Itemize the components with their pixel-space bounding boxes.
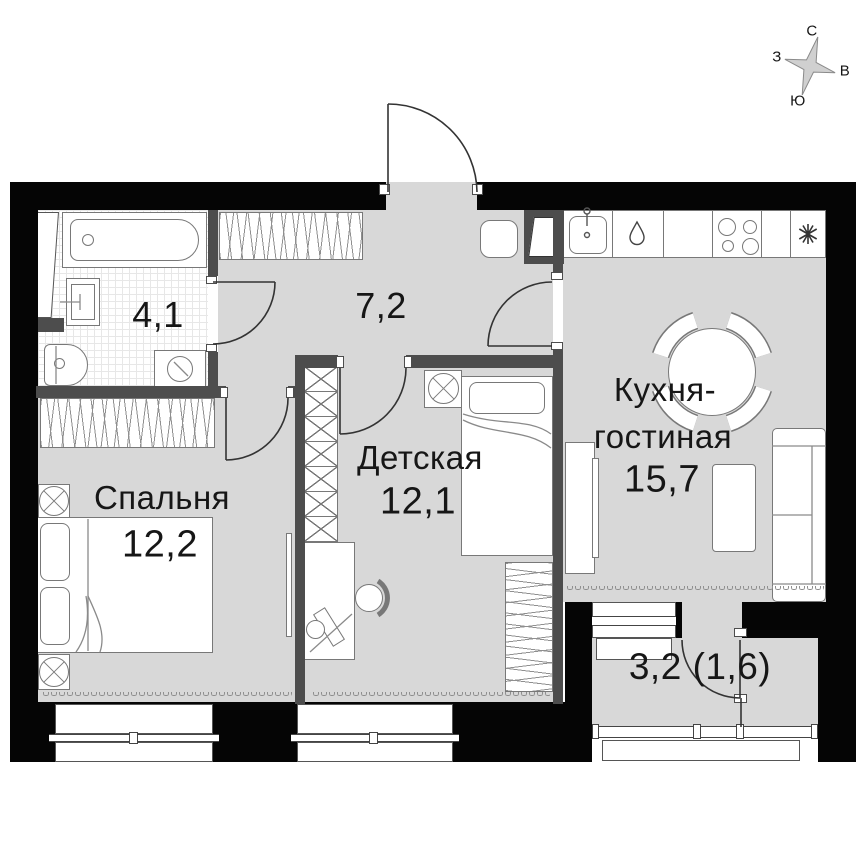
wardrobe-cell: [305, 467, 337, 492]
stove-burner: [722, 240, 734, 252]
bedroom-tv-icon: [286, 533, 292, 637]
compass-north-label: С: [806, 23, 817, 40]
door-jamb: [404, 356, 412, 368]
door-jamb: [220, 387, 228, 398]
door-jamb: [336, 356, 344, 368]
coat-closet-hangers-icon: [219, 212, 363, 260]
entrance-pouf: [480, 220, 518, 258]
compass-east-label: В: [840, 63, 851, 80]
toilet-dot: [54, 358, 65, 369]
bathroom-wall-bottom: [36, 386, 218, 398]
window-mullion: [592, 724, 599, 739]
balcony-wall-mid: [676, 602, 682, 638]
outer-wall-top-right: [477, 182, 856, 210]
sofa: [772, 428, 826, 602]
window-mullion: [129, 732, 138, 744]
window-mullion: [693, 724, 701, 739]
balcony-sill: [602, 740, 800, 761]
toilet-icon: [44, 344, 88, 386]
kitchen-living-area-label: 15,7: [624, 459, 700, 502]
stove-burner: [742, 238, 759, 255]
bedroom-window-sill: [55, 742, 213, 762]
outer-wall-left: [10, 182, 38, 762]
washing-machine-drum: [167, 356, 193, 382]
window-mullion: [736, 724, 744, 739]
door-jamb: [734, 694, 747, 703]
wardrobe-cell: [305, 442, 337, 467]
entrance-threshold-floor: [386, 182, 477, 210]
washbasin-inner: [71, 284, 95, 320]
nightstand-lamp-icon: [39, 486, 69, 516]
compass-star-icon: [785, 37, 835, 95]
outer-wall-right: [826, 182, 856, 612]
balcony-glazing: [592, 726, 818, 738]
counter-divider: [712, 210, 713, 258]
nightstand-lamp-icon: [428, 373, 459, 404]
door-jamb: [286, 387, 294, 398]
children-wardrobe-hangers-icon: [505, 562, 553, 692]
coffee-table: [712, 464, 756, 552]
stove-burner: [743, 220, 757, 234]
door-jamb: [206, 276, 217, 284]
children-room-name-label: Детская: [357, 439, 483, 477]
sink-icon: [569, 216, 607, 254]
wardrobe-cell: [305, 517, 337, 541]
door-jamb: [734, 628, 747, 637]
outer-wall-top-left: [10, 182, 386, 210]
bathroom-area-label: 4,1: [132, 294, 184, 336]
door-jamb: [206, 344, 217, 352]
wardrobe-cell: [305, 492, 337, 517]
bathroom-wall: [208, 352, 218, 386]
counter-divider: [663, 210, 664, 258]
desk-chair-seat: [355, 584, 383, 612]
wardrobe-cell: [305, 392, 337, 417]
door-jamb: [472, 184, 483, 195]
wardrobe-cell: [305, 417, 337, 442]
children-wardrobe-shelves-icon: [304, 366, 338, 542]
hall-living-wall: [553, 210, 563, 272]
balcony-door-threshold: [682, 602, 742, 638]
counter-divider: [612, 210, 613, 258]
kitchen-living-name-line1: Кухня-: [614, 371, 716, 409]
tv-stand: [565, 442, 595, 574]
bedroom-area-label: 12,2: [122, 524, 198, 567]
children-room-area-label: 12,1: [380, 481, 456, 524]
bedroom-children-wall: [295, 355, 305, 704]
children-radiator-wave: [312, 692, 550, 698]
door-jamb: [379, 184, 390, 195]
door-jamb: [551, 342, 563, 350]
hallway-area-label: 7,2: [355, 285, 407, 327]
bedroom-radiator-wave: [42, 692, 292, 698]
desk-lamp: [306, 620, 325, 639]
nightstand-lamp-icon: [39, 657, 69, 687]
children-wall-top: [406, 355, 563, 368]
stove-burner: [718, 218, 736, 236]
compass-south-label: Ю: [790, 93, 806, 110]
hall-living-wall: [553, 350, 563, 368]
bedroom-window-inner: [55, 704, 213, 734]
bed-pillow: [469, 382, 545, 414]
children-window-sill: [297, 742, 453, 762]
bathtub-drain: [82, 234, 94, 246]
bed-pillow: [40, 587, 70, 645]
balcony-area-label: 3,2 (1,6): [629, 646, 771, 688]
kitchen-living-name-line2: гостиная: [594, 418, 732, 456]
balcony-wall-right: [818, 602, 856, 762]
wardrobe-cell: [305, 367, 337, 392]
compass-west-label: З: [772, 49, 782, 66]
counter-divider: [790, 210, 791, 258]
living-balcony-window-glass: [592, 616, 676, 626]
floor-plan-page: { "compass": { "north": "С", "east": "В"…: [0, 0, 864, 864]
door-jamb: [551, 272, 563, 280]
window-mullion: [811, 724, 818, 739]
balcony-wall-left: [565, 602, 592, 762]
living-radiator-wave: [566, 586, 824, 592]
bedroom-name-label: Спальня: [94, 479, 230, 517]
shaft-wall-stub: [36, 318, 64, 332]
children-wall-top: [295, 355, 338, 368]
bedroom-wardrobe-hangers-icon: [40, 398, 215, 448]
counter-divider: [761, 210, 762, 258]
entrance-door-arc: [388, 104, 477, 192]
living-tv-icon: [592, 458, 599, 558]
window-mullion: [369, 732, 378, 744]
children-window-inner: [297, 704, 453, 734]
children-living-wall: [553, 368, 563, 704]
bed-pillow: [40, 523, 70, 581]
bathroom-wall: [208, 210, 218, 276]
